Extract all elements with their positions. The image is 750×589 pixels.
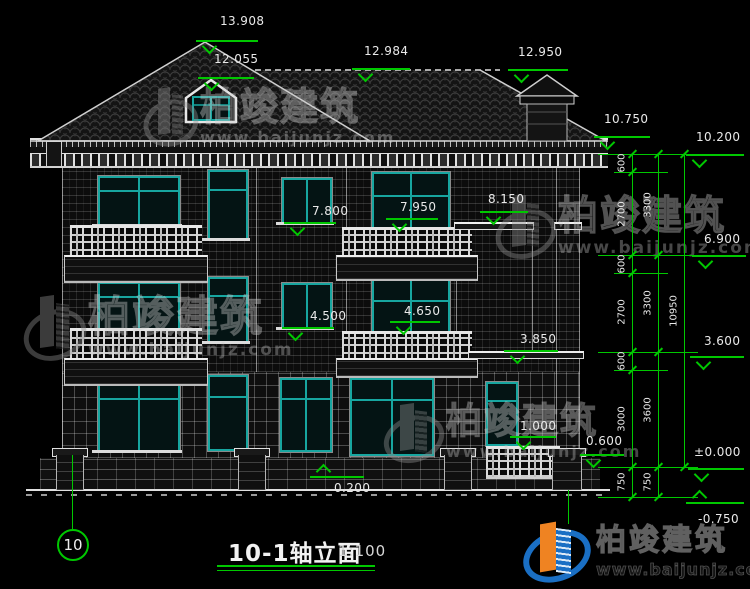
level-marker-line <box>510 436 556 438</box>
watermark-url: www.baijunjz.com <box>200 128 395 147</box>
watermark-building-bar <box>40 295 54 348</box>
axis-number: 10 <box>63 536 82 554</box>
dim-value: 600 <box>617 254 628 273</box>
watermark-logo-icon <box>26 296 80 360</box>
logo-building-blue <box>556 528 571 574</box>
chimney-cap <box>520 96 574 104</box>
watermark-text: 柏竣建筑www.baijunjz.com <box>558 196 750 258</box>
level-value: 8.150 <box>488 192 524 206</box>
level-value: 7.800 <box>312 204 348 218</box>
company-url: www.baijunjz.com <box>596 560 750 579</box>
level-marker-line <box>580 454 624 456</box>
level-marker-line <box>310 476 364 478</box>
company-logo: 柏竣建筑 www.baijunjz.com <box>522 518 748 586</box>
level-marker-line <box>284 222 336 224</box>
dim-value: 2700 <box>617 299 628 324</box>
dim-chain-line <box>658 154 659 497</box>
level-value: 3.850 <box>520 332 556 346</box>
level-value: 10.200 <box>696 130 740 144</box>
dim-extension-line <box>598 352 698 353</box>
dim-value: 3300 <box>643 290 654 315</box>
chimney-body <box>527 104 567 141</box>
level-marker-line <box>480 211 528 213</box>
level-value: 13.908 <box>220 14 264 28</box>
dim-extension-line <box>598 497 698 498</box>
watermark-brand: 柏竣建筑 <box>88 296 294 338</box>
company-name: 柏竣建筑 <box>596 526 750 556</box>
watermark: 柏竣建筑www.baijunjz.com <box>26 296 294 360</box>
drawing-scale: 1:100 <box>338 542 386 560</box>
watermark-brand: 柏竣建筑 <box>200 88 395 126</box>
level-marker-line <box>386 218 438 220</box>
dim-chain-line <box>684 154 685 467</box>
company-logo-icon <box>522 521 588 583</box>
axis-bubble-10: 10 <box>57 529 89 561</box>
level-marker-line <box>688 468 744 470</box>
watermark-logo-icon <box>386 404 438 462</box>
level-marker-line <box>594 136 650 138</box>
watermark-url: www.baijunjz.com <box>88 340 294 360</box>
dim-value: 750 <box>617 472 628 491</box>
watermark-building-bar <box>56 303 69 349</box>
level-value: 7.950 <box>400 200 436 214</box>
level-value: ±0.000 <box>694 445 741 459</box>
watermark: 柏竣建筑www.baijunjz.com <box>146 88 395 147</box>
level-marker-line <box>282 327 334 329</box>
title-underline-thick <box>217 565 375 567</box>
title-underline-thin <box>217 570 375 571</box>
watermark-brand: 柏竣建筑 <box>558 196 750 236</box>
level-value: 12.055 <box>214 52 258 66</box>
watermark-building-bar <box>172 94 183 136</box>
dim-value: 3000 <box>617 406 628 431</box>
watermark-swoosh <box>16 301 93 370</box>
dim-value: 3300 <box>643 192 654 217</box>
watermark-building-bar <box>400 403 414 451</box>
dim-value: 3600 <box>643 397 654 422</box>
level-marker-line <box>692 255 746 257</box>
elevation-drawing-canvas: 柏竣建筑www.baijunjz.com柏竣建筑www.baijunjz.com… <box>0 0 750 589</box>
watermark-swoosh <box>377 407 451 471</box>
level-value: 10.750 <box>604 112 648 126</box>
level-value: 6.900 <box>704 232 740 246</box>
level-marker-line <box>690 356 744 358</box>
dim-value: 2700 <box>617 201 628 226</box>
level-marker-line <box>198 77 254 79</box>
dim-chain-line <box>632 154 633 497</box>
level-value: 0.600 <box>586 434 622 448</box>
watermark-text: 柏竣建筑www.baijunjz.com <box>200 88 395 147</box>
level-marker-line <box>504 350 558 352</box>
level-value: 12.984 <box>364 44 408 58</box>
axis-line-10 <box>72 455 73 529</box>
watermark-building-bar <box>527 203 539 248</box>
dim-value: 10950 <box>669 295 680 327</box>
level-value: 4.650 <box>404 304 440 318</box>
dim-value: 750 <box>643 472 654 491</box>
logo-building-orange <box>540 522 556 573</box>
watermark-logo-icon <box>146 88 192 146</box>
level-value: 4.500 <box>310 309 346 323</box>
watermark-text: 柏竣建筑www.baijunjz.com <box>88 296 294 360</box>
dim-value: 600 <box>617 351 628 370</box>
level-value: 0.200 <box>334 481 370 495</box>
level-value: 3.600 <box>704 334 740 348</box>
level-value: 1.000 <box>520 419 556 433</box>
level-marker-line <box>686 502 744 504</box>
level-value: 12.950 <box>518 45 562 59</box>
dim-value: 600 <box>617 153 628 172</box>
level-marker-line <box>390 321 440 323</box>
watermark-building-bar <box>415 410 427 452</box>
watermark-building-bar <box>158 87 170 135</box>
dim-extension-line <box>598 255 698 256</box>
